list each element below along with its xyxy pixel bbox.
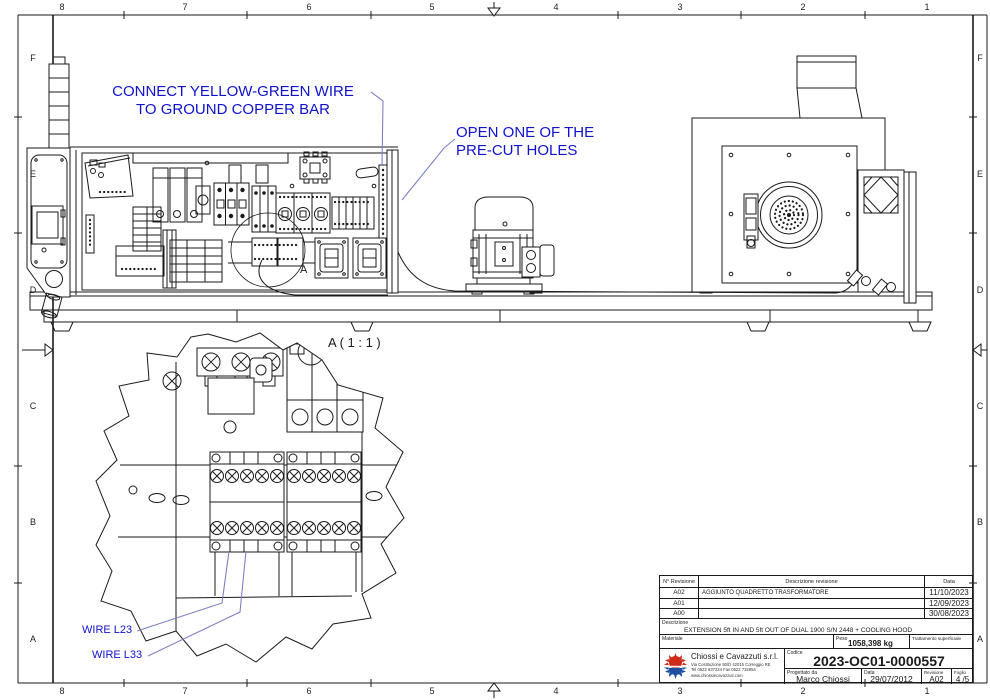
revision-cell: Revisione A02 (921, 668, 951, 684)
chimney (797, 56, 862, 118)
annotation-connect-wire-line1: CONNECT YELLOW-GREEN WIRE (95, 83, 371, 101)
detail-view (96, 333, 404, 662)
rev-row2-rev: A01 (660, 598, 698, 609)
detail-view-title: A ( 1 : 1 ) (328, 335, 381, 350)
code-label: Codice (787, 650, 803, 656)
zone-bottom-3: 3 (673, 686, 687, 696)
rev-row1-desc: AGGIUNTO QUADRETTO TRASFORMATORE (698, 587, 924, 598)
rev-row3-rev: A00 (660, 608, 698, 618)
zone-top-7: 7 (178, 2, 192, 12)
zone-right-b: B (973, 517, 987, 527)
zone-top-8: 8 (55, 2, 69, 12)
annotation-precut-holes: OPEN ONE OF THE PRE-CUT HOLES (456, 124, 594, 160)
grille-box (858, 170, 904, 292)
description-value: EXTENSION 5ft IN AND 5ft OUT OF DUAL 190… (684, 627, 912, 634)
zone-bottom-4: 4 (549, 686, 563, 696)
material-cell: Materiale (660, 634, 833, 648)
code-cell: Codice 2023-OC01-0000557 (784, 648, 973, 668)
zone-bottom-1: 1 (920, 686, 934, 696)
annotation-connect-wire-line2: TO GROUND COPPER BAR (95, 101, 371, 119)
rev-row1-rev: A02 (660, 587, 698, 598)
rev-row3-date: 30/08/2023 (924, 608, 973, 618)
leader-precut-holes (402, 139, 455, 200)
cooling-hood (692, 56, 916, 303)
sheet-label: Foglio (954, 670, 966, 675)
designer-cell: Progettato da Marco Chiossi (784, 668, 861, 684)
revision-label: Revisione (924, 670, 943, 675)
rev-header-col1: N° Revisione (660, 576, 698, 587)
zone-top-3: 3 (673, 2, 687, 12)
company-logo (662, 651, 689, 683)
company-cell: Chiossi e Cavazzuti s.r.l. Via Costituzi… (660, 648, 784, 684)
date-label: Data (864, 670, 875, 676)
annotation-precut-holes-line1: OPEN ONE OF THE (456, 124, 594, 142)
annotation-wire-l33: WIRE L33 (92, 649, 142, 661)
zone-top-1: 1 (920, 2, 934, 12)
zone-bottom-5: 5 (425, 686, 439, 696)
title-block: N° Revisione Descrizione revisione Data … (659, 575, 973, 683)
zone-bottom-2: 2 (796, 686, 810, 696)
zone-top-5: 5 (425, 2, 439, 12)
zone-bottom-8: 8 (55, 686, 69, 696)
surface-label: Trattamento superficiale (912, 636, 961, 641)
weight-label: Peso (836, 636, 847, 642)
centering-mark-left (22, 344, 53, 356)
annotation-wire-l23: WIRE L23 (82, 624, 132, 636)
annotation-precut-holes-line2: PRE-CUT HOLES (456, 142, 594, 160)
designer-label: Progettato da (787, 670, 817, 676)
zone-right-f: F (973, 53, 987, 63)
signal-tower (49, 57, 69, 148)
weight-cell: Peso 1058,398 kg (833, 634, 909, 648)
end-wall (904, 172, 916, 303)
zone-bottom-7: 7 (178, 686, 192, 696)
rev-row2-date: 12/09/2023 (924, 598, 973, 609)
weight-value: 1058,398 kg (848, 639, 893, 648)
company-name: Chiossi e Cavazzuti s.r.l. (691, 652, 778, 662)
latch (744, 194, 758, 248)
drawing-sheet: 8 7 6 5 4 3 2 1 8 7 6 5 4 3 2 1 F E D C … (0, 0, 990, 700)
rev-header-col2: Descrizione revisione (698, 576, 924, 587)
detail-callout-letter: A (300, 264, 307, 276)
sheet-cell: Foglio 4 /5 (951, 668, 973, 684)
zone-right-d: D (973, 285, 987, 295)
zone-right-e: E (973, 169, 987, 179)
description-label: Descrizione (662, 620, 688, 626)
zone-top-2: 2 (796, 2, 810, 12)
rev-header-col3: Data (924, 576, 973, 587)
zone-top-6: 6 (302, 2, 316, 12)
leader-connect-wire (371, 92, 383, 166)
electrical-cabinet (70, 147, 398, 293)
zone-bottom-6: 6 (302, 686, 316, 696)
material-label: Materiale (662, 636, 683, 642)
company-web: www.chiossiecavazzuti.com (691, 673, 778, 678)
zone-left-e: E (26, 169, 40, 179)
zone-top-4: 4 (549, 2, 563, 12)
rev-row1-date: 11/10/2023 (924, 587, 973, 598)
zone-left-c: C (26, 401, 40, 411)
description-cell: Descrizione EXTENSION 5ft IN AND 5ft OUT… (660, 618, 973, 634)
rev-row3-desc (698, 608, 924, 618)
socket-outlets (315, 238, 386, 278)
zone-right-c: C (973, 401, 987, 411)
annotation-connect-wire: CONNECT YELLOW-GREEN WIRE TO GROUND COPP… (95, 83, 371, 119)
centering-mark-right (973, 344, 987, 356)
zone-right-a: A (973, 634, 987, 644)
surface-cell: Trattamento superficiale (909, 634, 973, 648)
zone-left-d: D (26, 285, 40, 295)
centering-mark-top (488, 2, 500, 16)
code-value: 2023-OC01-0000557 (785, 649, 973, 668)
rev-row2-desc (698, 598, 924, 609)
leader-wire-l33 (148, 551, 246, 656)
zone-left-b: B (26, 517, 40, 527)
zone-left-a: A (26, 634, 40, 644)
centering-mark-bottom (488, 683, 500, 698)
date-cell: Data 29/07/2012 (861, 668, 921, 684)
motor (466, 197, 554, 294)
zone-left-f: F (26, 53, 40, 63)
